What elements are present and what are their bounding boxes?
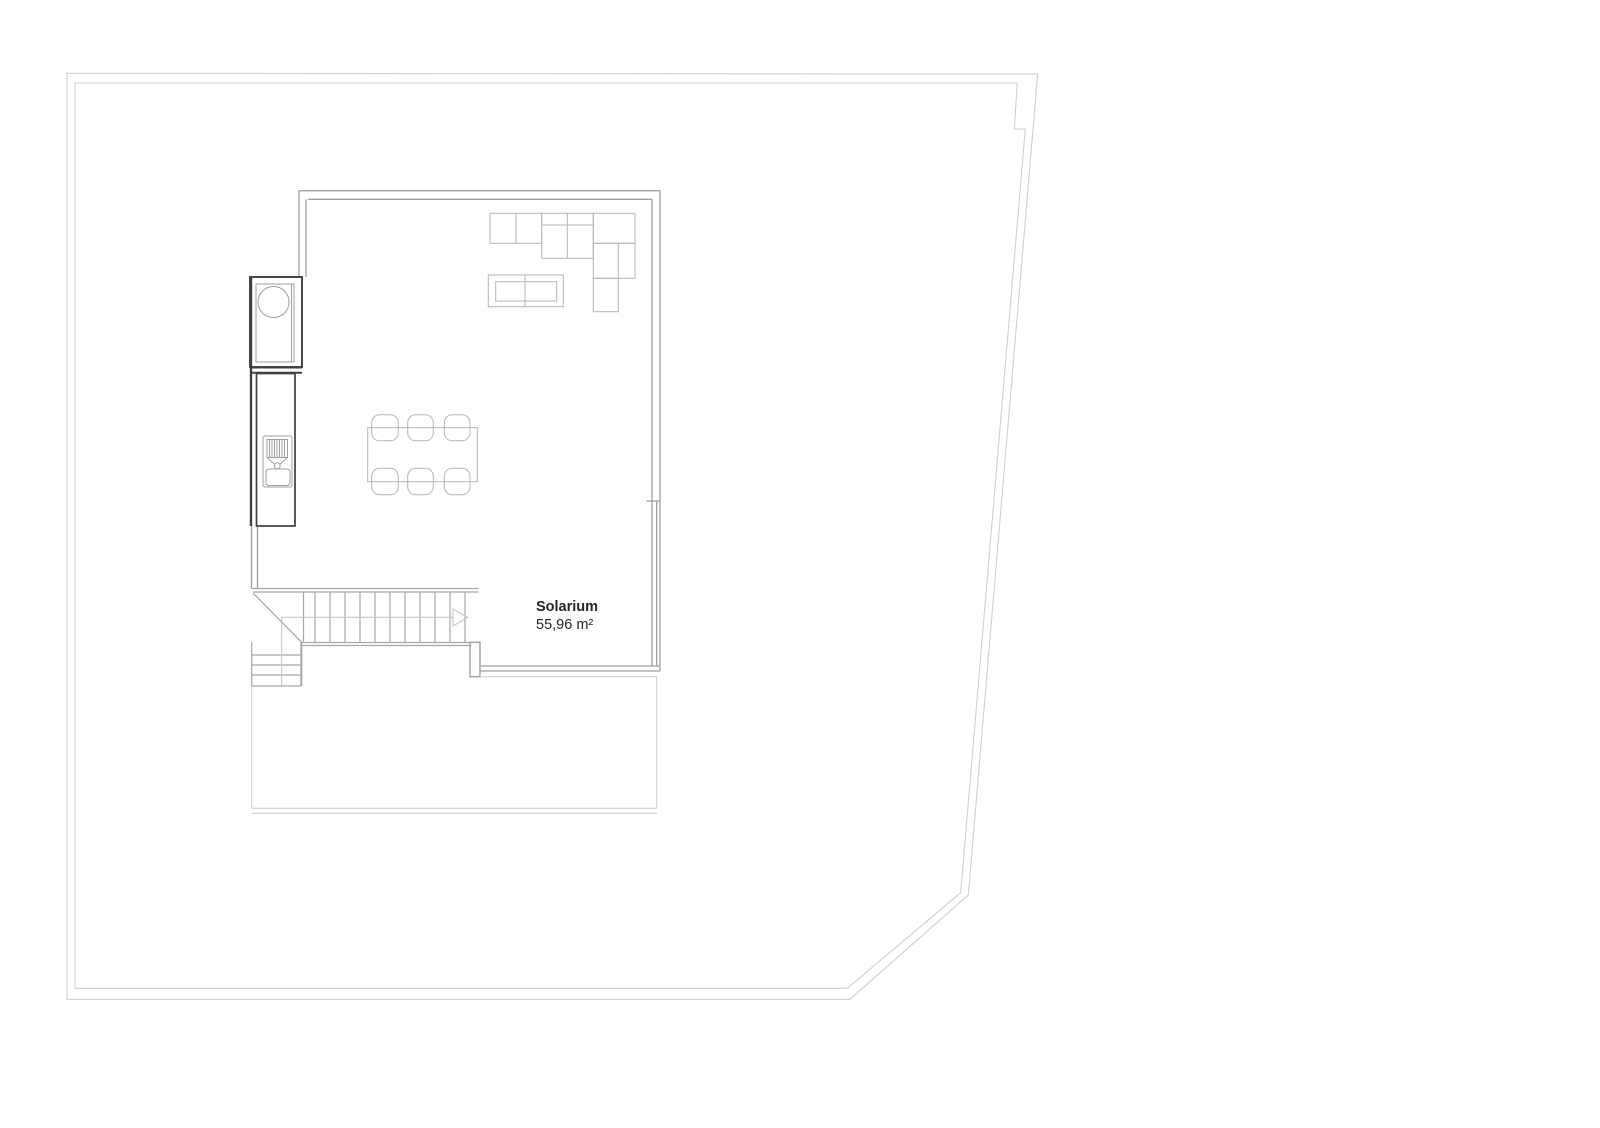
- coffee-table: [488, 275, 563, 307]
- upper-cabinet-inner: [256, 284, 294, 362]
- floor-plan-svg: [0, 0, 1600, 1128]
- sofa-module: [593, 213, 635, 243]
- round-sink: [258, 287, 289, 318]
- floor-plan-canvas: Solarium 55,96 m²: [0, 0, 1600, 1128]
- coffee-table-inner: [496, 282, 557, 301]
- sink-basin: [266, 469, 290, 486]
- room-name-label: Solarium: [536, 599, 598, 615]
- kitchen-divider-wall: [250, 368, 302, 373]
- stair-top-edge: [252, 589, 479, 593]
- walk-line-path: [282, 617, 453, 686]
- dining-set: [368, 415, 478, 495]
- sofa: [490, 213, 635, 311]
- staircase: [252, 589, 480, 687]
- dining-table: [368, 428, 478, 482]
- coffee-table-outline: [488, 275, 563, 307]
- property-boundary-outer: [67, 73, 1038, 999]
- kitchen-lower-cabinet: [257, 374, 296, 527]
- solarium-walls: [252, 191, 661, 671]
- lower-terrace: [252, 677, 657, 814]
- room-area-label: 55,96 m²: [536, 617, 593, 633]
- winder-steps: [252, 642, 301, 686]
- property-boundary-inner: [75, 83, 1025, 988]
- right-wall-inner-lower: [652, 501, 657, 666]
- faucet-icon: [274, 463, 280, 469]
- grill-hatch: [270, 440, 285, 458]
- outdoor-kitchen: [250, 277, 302, 526]
- stair-bottom-edge: [302, 643, 472, 646]
- property-boundary: [67, 73, 1038, 999]
- stair-end-wall: [470, 642, 480, 676]
- left-wall-lower: [252, 526, 258, 589]
- bottom-wall: [480, 666, 660, 671]
- sofa-module: [593, 278, 618, 311]
- sofa-module: [593, 243, 635, 278]
- sofa-module-divider: [542, 213, 594, 258]
- terrace-bottom-edge: [252, 808, 657, 813]
